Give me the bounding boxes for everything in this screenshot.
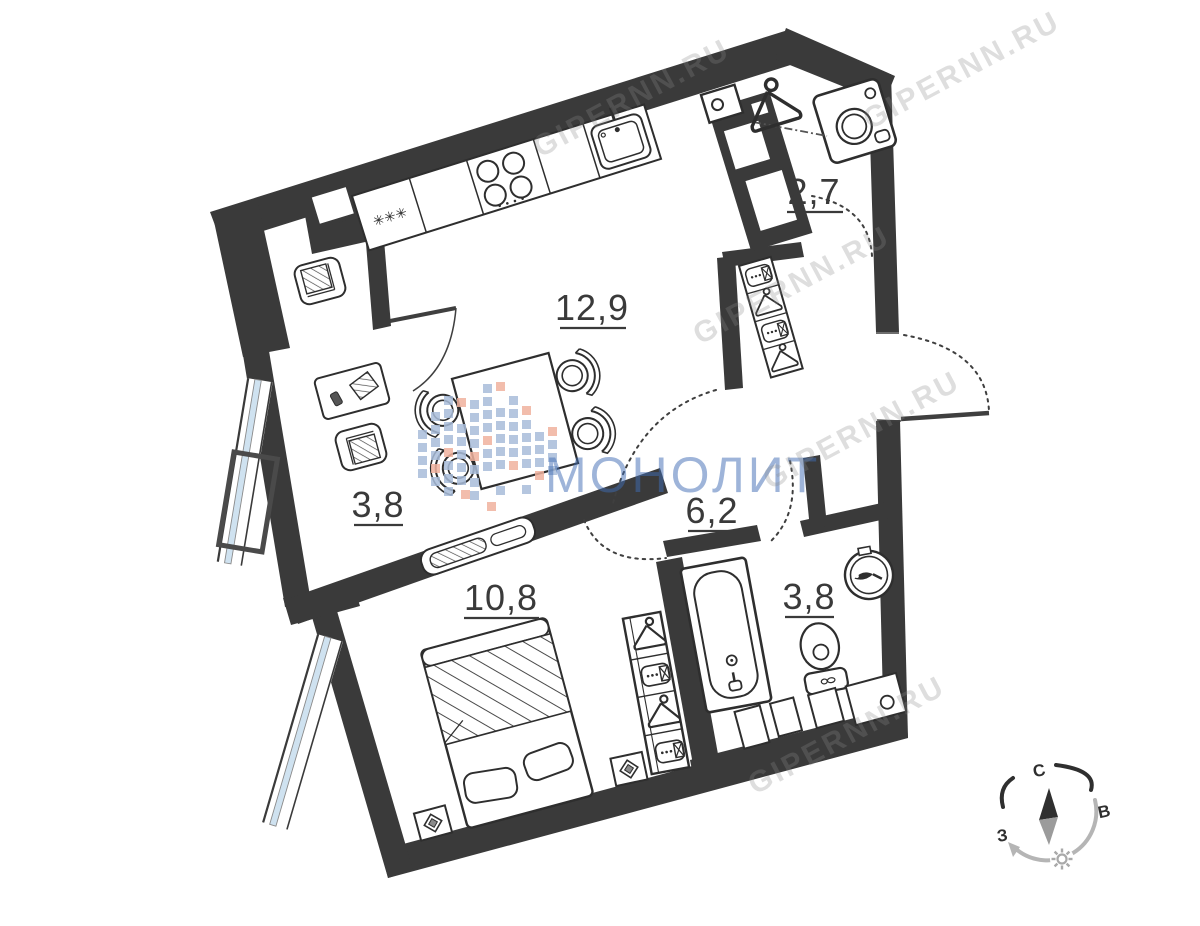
compass-east-label: В (1096, 801, 1112, 822)
compass-needle-dark (1039, 788, 1058, 820)
room-label-kitchen-living: 12,9 (555, 287, 629, 328)
floor-plan-page: ✳✳✳ (0, 0, 1200, 926)
room-label-bathroom: 3,8 (782, 576, 835, 617)
sun-icon (1050, 847, 1074, 871)
room-label-study: 3,8 (351, 484, 404, 525)
nightstand-icon (610, 752, 647, 786)
armchair-icon (334, 422, 389, 473)
study-door-swing (413, 308, 456, 391)
compass-dark-arc (1056, 765, 1092, 790)
tv-stand-icon (418, 514, 538, 577)
compass-west-label: З (996, 826, 1009, 846)
bedroom-door-swing (584, 520, 666, 559)
compass-north-label: С (1031, 760, 1047, 781)
site-watermark-text: GIPERNN.RU (758, 365, 966, 497)
bedroom-window (262, 634, 343, 830)
floor-plan-canvas: ✳✳✳ (0, 0, 1200, 926)
brand-watermark: МОНОЛИТ (418, 382, 820, 511)
compass-rose: С В З (996, 760, 1112, 871)
armchair-icon (293, 256, 348, 307)
room-label-laundry: 2,7 (787, 171, 840, 212)
compass-needle-gray (1039, 817, 1058, 845)
site-watermark-text: GIPERNN.RU (858, 5, 1066, 137)
room-label-bedroom: 10,8 (464, 577, 538, 618)
site-watermarks: GIPERNN.RU GIPERNN.RU GIPERNN.RU GIPERNN… (528, 5, 1066, 802)
compass-dark-arc (1002, 778, 1013, 807)
study-door-leaf (390, 308, 456, 321)
toilet-icon (795, 620, 849, 695)
desk-icon (314, 362, 391, 420)
compass-arrowhead (1008, 842, 1020, 857)
bed-icon (420, 617, 593, 828)
